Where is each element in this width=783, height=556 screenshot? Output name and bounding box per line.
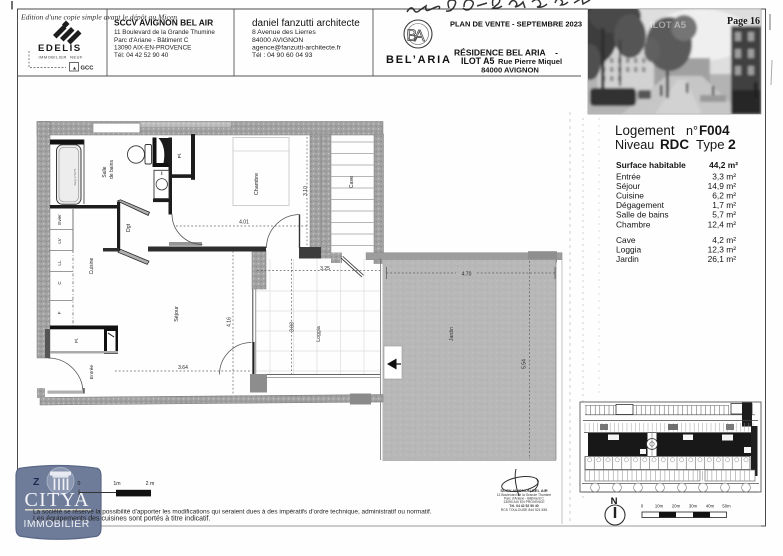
svg-text:IMMOBILIER NEUF: IMMOBILIER NEUF: [39, 55, 84, 60]
svg-text:▲: ▲: [72, 66, 77, 72]
svg-text:26,1 m²: 26,1 m²: [708, 254, 737, 264]
svg-text:8 Avenue des Lierres: 8 Avenue des Lierres: [252, 29, 316, 36]
svg-text:2 m: 2 m: [146, 481, 155, 487]
svg-text:Pl.: Pl.: [177, 153, 183, 159]
svg-text:BEL’ARIA: BEL’ARIA: [386, 54, 452, 66]
svg-text:Niveau: Niveau: [615, 138, 654, 152]
svg-text:44,2 m²: 44,2 m²: [709, 160, 738, 170]
svg-text:Entrée: Entrée: [89, 365, 95, 379]
svg-text:SCCV AVIGNON BEL AIR: SCCV AVIGNON BEL AIR: [114, 18, 213, 28]
svg-text:5.54: 5.54: [522, 359, 528, 369]
svg-text:20m: 20m: [672, 504, 681, 509]
svg-text:EDELIS: EDELIS: [38, 43, 82, 54]
svg-text:ILOT A5: ILOT A5: [650, 20, 687, 31]
svg-text:RCS TOULOUSE 844 521 836: RCS TOULOUSE 844 521 836: [501, 508, 548, 512]
svg-text:Dégagement: Dégagement: [616, 200, 665, 210]
svg-text:ILOT A5: ILOT A5: [461, 56, 495, 66]
svg-text:3.10: 3.10: [303, 186, 309, 196]
svg-text:RDC: RDC: [660, 137, 689, 152]
svg-text:F004: F004: [699, 123, 730, 138]
svg-text:1m: 1m: [113, 481, 120, 487]
svg-text:daniel fanzutti architecte: daniel fanzutti architecte: [252, 18, 360, 29]
svg-text:Loggia: Loggia: [316, 326, 322, 342]
svg-text:4,2 m²: 4,2 m²: [712, 235, 736, 245]
svg-text:de bains: de bains: [109, 160, 115, 179]
svg-text:Cuisine: Cuisine: [89, 257, 95, 274]
svg-text:14,9 m²: 14,9 m²: [708, 181, 737, 191]
svg-text:Parc d'Ariane - Bâtiment C: Parc d'Ariane - Bâtiment C: [114, 37, 189, 44]
svg-text:Type: Type: [696, 137, 725, 152]
svg-text:0: 0: [78, 481, 81, 487]
svg-text:GCC: GCC: [81, 66, 95, 72]
svg-text:A: A: [414, 28, 425, 45]
svg-text:Jardin: Jardin: [449, 327, 455, 341]
svg-text:11 Boulevard de la Grande Thum: 11 Boulevard de la Grande Thumine: [114, 29, 215, 36]
svg-text:La société se réserve la possi: La société se réserve la possibilité d'a…: [33, 509, 432, 516]
svg-text:Logement: Logement: [615, 123, 675, 138]
svg-text:Cave: Cave: [616, 235, 636, 245]
svg-text:Cuisine: Cuisine: [616, 191, 644, 201]
svg-text:Salle: Salle: [102, 166, 108, 177]
svg-text:Chambre: Chambre: [254, 173, 260, 195]
svg-text:F: F: [57, 311, 62, 314]
svg-text:Pl.: Pl.: [74, 338, 79, 343]
svg-text:3,3 m²: 3,3 m²: [712, 172, 736, 182]
svg-text:12,4 m²: 12,4 m²: [708, 220, 737, 230]
svg-text:4.16: 4.16: [227, 317, 233, 327]
svg-text:PLAN DE VENTE - SEPTEMBRE 2023: PLAN DE VENTE - SEPTEMBRE 2023: [450, 20, 582, 29]
svg-text:6,2 m²: 6,2 m²: [712, 191, 736, 201]
svg-text:Chambre: Chambre: [616, 220, 651, 230]
svg-text:Tél: 04 42 52 90 40: Tél: 04 42 52 90 40: [114, 52, 169, 59]
svg-text:4.70: 4.70: [462, 272, 472, 278]
svg-text:n°: n°: [686, 124, 698, 138]
svg-text:Dgt: Dgt: [126, 223, 132, 232]
svg-text:Cave: Cave: [349, 176, 355, 188]
svg-text:Les équipements des cuisines s: Les équipements des cuisines sont portés…: [33, 516, 210, 523]
svg-text:4.01: 4.01: [239, 220, 249, 226]
svg-text:agence@fanzutti-architecte.fr: agence@fanzutti-architecte.fr: [252, 45, 342, 52]
svg-text:40m: 40m: [706, 504, 715, 509]
svg-text:50m: 50m: [722, 504, 731, 509]
svg-text:10m: 10m: [655, 504, 664, 509]
svg-text:Entrée: Entrée: [616, 172, 641, 182]
svg-text:84000 AVIGNON: 84000 AVIGNON: [481, 66, 539, 75]
svg-text:3.83: 3.83: [290, 322, 296, 332]
svg-text:13090 AIX-EN-PROVENCE: 13090 AIX-EN-PROVENCE: [114, 45, 191, 52]
svg-text:Séjour: Séjour: [616, 181, 640, 191]
svg-text:3.64: 3.64: [178, 365, 188, 371]
svg-text:Séjour: Séjour: [174, 306, 180, 322]
svg-text:84000 AVIGNON: 84000 AVIGNON: [252, 37, 303, 44]
svg-text:Tél : 04 90 60 04 93: Tél : 04 90 60 04 93: [252, 52, 313, 59]
svg-text:3.25: 3.25: [320, 266, 330, 272]
svg-text:1,7 m²: 1,7 m²: [712, 200, 736, 210]
svg-text:Jardin: Jardin: [616, 254, 639, 264]
svg-text:12,3 m²: 12,3 m²: [708, 245, 737, 255]
svg-text:Z: Z: [33, 476, 40, 488]
svg-text:Evier: Evier: [57, 214, 62, 225]
svg-text:5,7 m²: 5,7 m²: [712, 210, 736, 220]
svg-text:Surface habitable: Surface habitable: [616, 160, 686, 170]
svg-text:LL: LL: [57, 260, 62, 266]
svg-text:2: 2: [728, 136, 736, 152]
svg-text:Loggia: Loggia: [616, 245, 641, 255]
svg-text:30m: 30m: [689, 504, 698, 509]
svg-text:Page 16: Page 16: [727, 16, 760, 27]
svg-text:Salle de bains: Salle de bains: [616, 210, 669, 220]
svg-text:Baig 170x75: Baig 170x75: [73, 168, 77, 185]
